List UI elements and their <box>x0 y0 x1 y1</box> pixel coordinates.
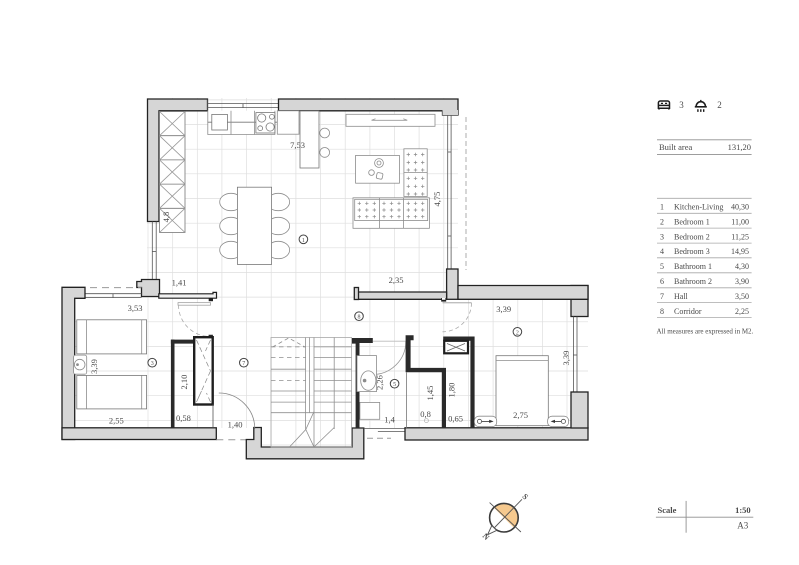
svg-text:Kitchen-Living: Kitchen-Living <box>674 203 723 212</box>
svg-text:1,41: 1,41 <box>172 278 187 288</box>
svg-text:3,39: 3,39 <box>89 359 99 374</box>
svg-text:1,40: 1,40 <box>228 419 243 429</box>
svg-text:0,8: 0,8 <box>420 409 431 419</box>
svg-text:8: 8 <box>358 315 361 321</box>
svg-text:2: 2 <box>660 218 664 227</box>
svg-text:3: 3 <box>679 100 684 110</box>
svg-text:1: 1 <box>660 203 664 212</box>
svg-text:40,30: 40,30 <box>731 203 749 212</box>
svg-text:Built area: Built area <box>659 142 693 152</box>
svg-text:3: 3 <box>151 361 154 367</box>
svg-text:4,30: 4,30 <box>735 262 749 271</box>
svg-text:3,50: 3,50 <box>735 292 749 301</box>
svg-text:11,25: 11,25 <box>731 232 749 241</box>
svg-text:2,26: 2,26 <box>375 375 385 390</box>
svg-text:5: 5 <box>393 382 396 388</box>
svg-text:5: 5 <box>660 262 664 271</box>
svg-text:2: 2 <box>516 330 519 336</box>
svg-text:3,53: 3,53 <box>128 303 143 313</box>
svg-text:7: 7 <box>242 361 245 367</box>
svg-text:4,8: 4,8 <box>161 212 171 223</box>
svg-text:Bathroom 1: Bathroom 1 <box>674 262 712 271</box>
svg-text:Bedroom 2: Bedroom 2 <box>674 232 710 241</box>
svg-text:4: 4 <box>660 247 664 256</box>
svg-text:All measures are expressed in: All measures are expressed in M2. <box>657 328 754 336</box>
svg-text:Hall: Hall <box>674 292 689 301</box>
svg-text:8: 8 <box>660 307 664 316</box>
svg-text:1,80: 1,80 <box>447 383 457 398</box>
svg-text:1,4: 1,4 <box>384 414 395 424</box>
svg-text:Scale: Scale <box>658 505 677 515</box>
svg-text:2,10: 2,10 <box>179 375 189 390</box>
svg-text:2,55: 2,55 <box>109 416 124 426</box>
svg-text:3,90: 3,90 <box>735 277 749 286</box>
svg-text:Corridor: Corridor <box>674 307 702 316</box>
svg-text:Bedroom 3: Bedroom 3 <box>674 247 710 256</box>
svg-text:4,75: 4,75 <box>432 192 442 207</box>
svg-text:1: 1 <box>302 238 305 244</box>
svg-text:6: 6 <box>660 277 664 286</box>
svg-text:3,39: 3,39 <box>496 304 511 314</box>
svg-text:11,00: 11,00 <box>731 218 749 227</box>
svg-text:7,53: 7,53 <box>290 140 305 150</box>
svg-text:0,65: 0,65 <box>448 414 463 424</box>
svg-text:2,35: 2,35 <box>389 275 404 285</box>
svg-text:A3: A3 <box>737 521 748 531</box>
svg-text:1:50: 1:50 <box>735 505 751 515</box>
svg-text:Bathroom 2: Bathroom 2 <box>674 277 712 286</box>
svg-text:2: 2 <box>717 100 722 110</box>
svg-text:1,45: 1,45 <box>425 386 435 401</box>
svg-text:3,39: 3,39 <box>561 351 571 366</box>
svg-text:2,25: 2,25 <box>735 307 749 316</box>
svg-text:131,20: 131,20 <box>728 142 751 152</box>
svg-text:14,95: 14,95 <box>731 247 749 256</box>
svg-text:Bedroom 1: Bedroom 1 <box>674 218 710 227</box>
svg-text:0,58: 0,58 <box>176 413 191 423</box>
svg-text:2,75: 2,75 <box>513 410 528 420</box>
svg-text:3: 3 <box>660 232 664 241</box>
svg-text:7: 7 <box>660 292 664 301</box>
